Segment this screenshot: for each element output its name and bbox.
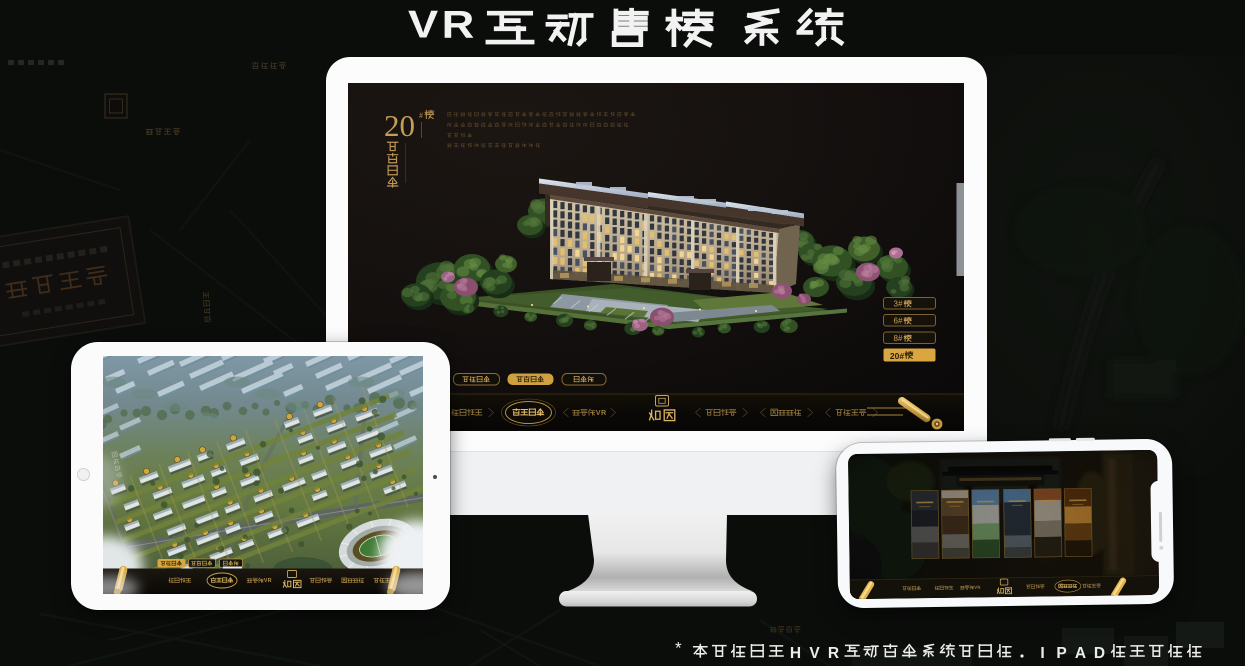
svg-text:#: #	[419, 111, 423, 120]
svg-text:D: D	[1094, 645, 1105, 662]
svg-text:20#: 20#	[889, 351, 903, 361]
svg-text:VR: VR	[974, 584, 981, 589]
svg-text:6#: 6#	[893, 317, 902, 326]
svg-text:VR: VR	[408, 2, 478, 45]
svg-text:20: 20	[384, 108, 415, 143]
svg-text:P: P	[1056, 645, 1066, 662]
svg-text:V: V	[809, 645, 820, 662]
svg-text:VR: VR	[595, 408, 606, 417]
svg-text:*: *	[675, 639, 682, 658]
svg-text:H: H	[790, 645, 801, 662]
svg-text:VR: VR	[263, 578, 271, 584]
svg-text:A: A	[1075, 645, 1086, 662]
svg-text:R: R	[828, 645, 839, 662]
svg-text:3#: 3#	[893, 300, 902, 309]
svg-text:I: I	[1040, 645, 1044, 662]
svg-text:8#: 8#	[893, 334, 902, 343]
